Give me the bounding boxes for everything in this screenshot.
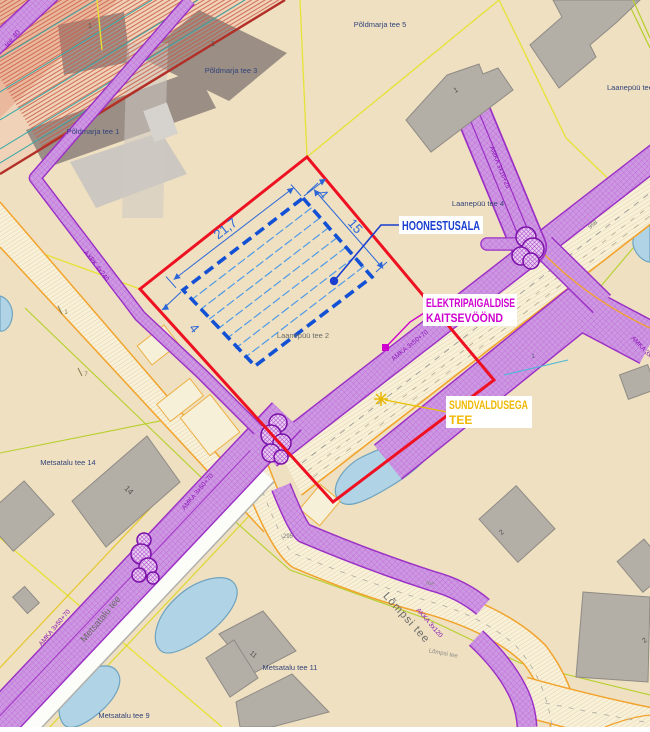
- svg-text:Laanepüü tee 4: Laanepüü tee 4: [452, 199, 504, 208]
- svg-text:Metsatalu tee 14: Metsatalu tee 14: [40, 458, 95, 467]
- svg-text:1: 1: [211, 41, 215, 48]
- svg-text:TEE: TEE: [449, 413, 472, 427]
- svg-text:Põldmarja tee 3: Põldmarja tee 3: [205, 66, 258, 75]
- svg-text:Metsatalu tee 9: Metsatalu tee 9: [98, 711, 149, 720]
- svg-text:HOONESTUSALA: HOONESTUSALA: [402, 219, 480, 233]
- svg-text:Laanepüü tee 2: Laanepüü tee 2: [277, 331, 329, 340]
- svg-text:Põldmarja tee 1: Põldmarja tee 1: [67, 127, 120, 136]
- svg-text:295: 295: [283, 534, 294, 540]
- svg-text:Põldmarja tee 5: Põldmarja tee 5: [354, 20, 407, 29]
- svg-text:ELEKTRIPAIGALDISE: ELEKTRIPAIGALDISE: [426, 296, 515, 310]
- svg-text:1: 1: [88, 23, 92, 30]
- svg-text:SUNDVALDUSEGA: SUNDVALDUSEGA: [449, 398, 528, 412]
- svg-text:Metsatalu tee 11: Metsatalu tee 11: [263, 663, 318, 672]
- svg-text:Laanepüü tee: Laanepüü tee: [607, 83, 650, 92]
- svg-text:KAITSEVÖÖND: KAITSEVÖÖND: [426, 310, 503, 325]
